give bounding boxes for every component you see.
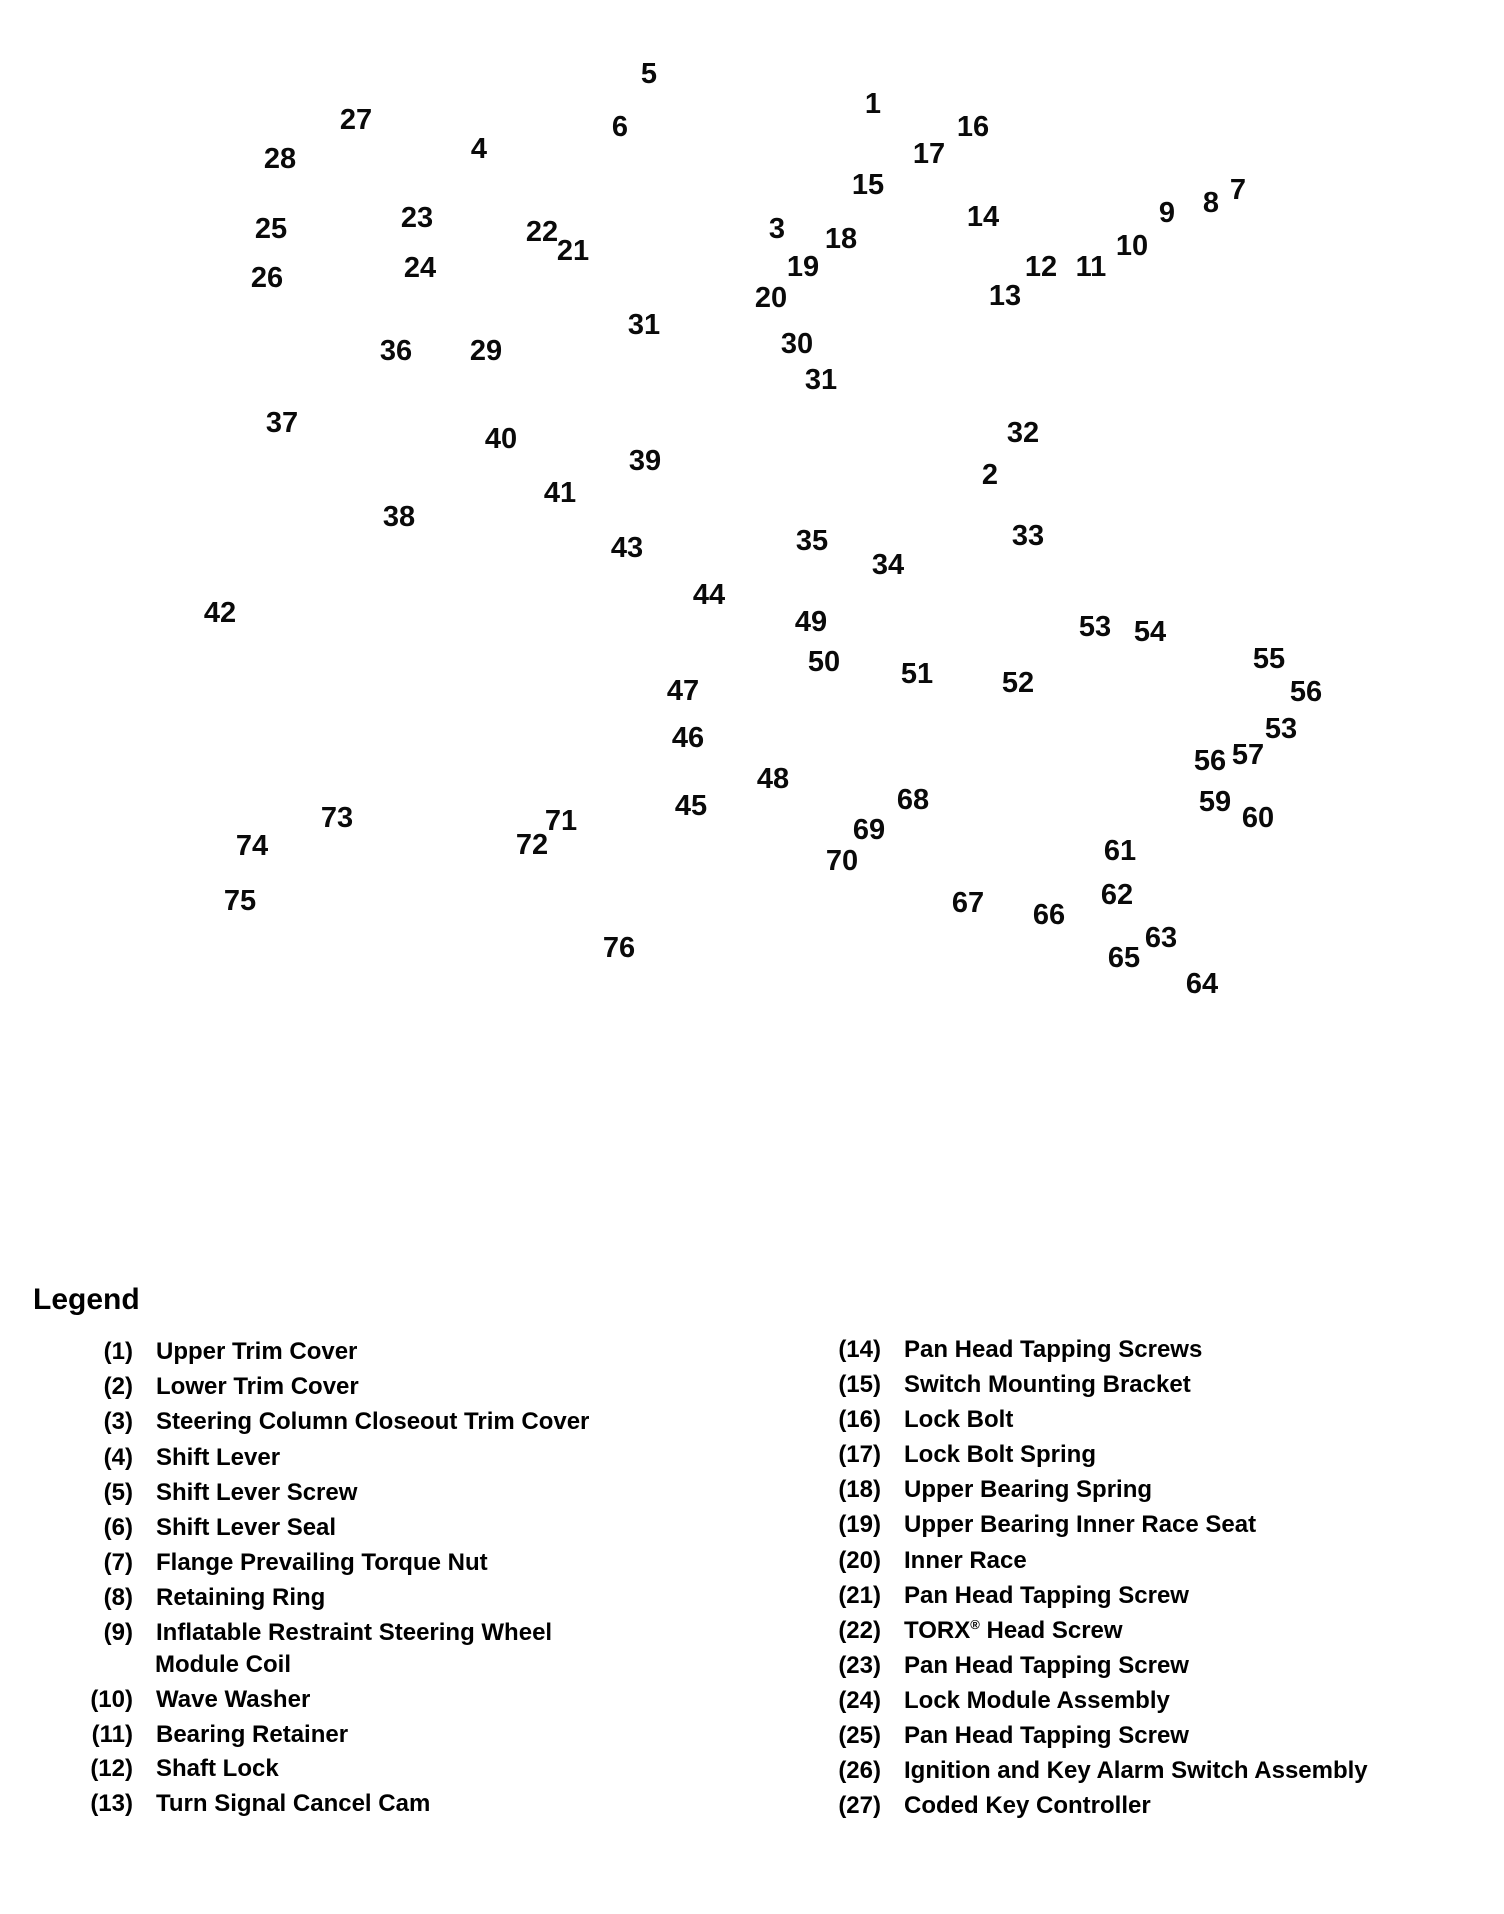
- svg-text:48: 48: [757, 763, 789, 795]
- svg-text:53: 53: [1265, 713, 1297, 745]
- svg-text:16: 16: [957, 111, 989, 143]
- svg-text:12: 12: [1025, 251, 1057, 283]
- svg-text:44: 44: [693, 579, 725, 611]
- svg-text:22: 22: [526, 216, 558, 248]
- svg-text:69: 69: [853, 814, 885, 846]
- svg-text:46: 46: [672, 722, 704, 754]
- svg-text:59: 59: [1199, 786, 1231, 818]
- svg-text:61: 61: [1104, 835, 1136, 867]
- svg-text:4: 4: [471, 133, 487, 165]
- svg-text:5: 5: [641, 58, 657, 90]
- svg-text:50: 50: [808, 646, 840, 678]
- svg-text:66: 66: [1033, 899, 1065, 931]
- svg-text:18: 18: [825, 223, 857, 255]
- svg-text:52: 52: [1002, 667, 1034, 699]
- svg-text:57: 57: [1232, 739, 1264, 771]
- svg-text:2: 2: [982, 459, 998, 491]
- svg-text:17: 17: [913, 138, 945, 170]
- svg-text:23: 23: [401, 202, 433, 234]
- svg-text:11: 11: [1076, 251, 1107, 283]
- svg-text:56: 56: [1194, 745, 1226, 777]
- svg-text:74: 74: [236, 830, 268, 862]
- svg-text:24: 24: [404, 252, 436, 284]
- svg-text:35: 35: [796, 525, 828, 557]
- svg-text:68: 68: [897, 784, 929, 816]
- svg-text:55: 55: [1253, 643, 1285, 675]
- svg-text:67: 67: [952, 887, 984, 919]
- svg-text:29: 29: [470, 335, 502, 367]
- svg-text:15: 15: [852, 169, 884, 201]
- svg-text:28: 28: [264, 143, 296, 175]
- svg-text:19: 19: [787, 251, 819, 283]
- svg-text:43: 43: [611, 532, 643, 564]
- svg-text:13: 13: [989, 280, 1021, 312]
- svg-text:40: 40: [485, 423, 517, 455]
- svg-text:60: 60: [1242, 802, 1274, 834]
- svg-text:21: 21: [557, 235, 589, 267]
- svg-text:27: 27: [340, 104, 372, 136]
- svg-text:38: 38: [383, 501, 415, 533]
- svg-text:30: 30: [781, 328, 813, 360]
- svg-text:53: 53: [1079, 611, 1111, 643]
- svg-text:31: 31: [805, 364, 837, 396]
- svg-text:54: 54: [1134, 616, 1166, 648]
- svg-text:37: 37: [266, 407, 298, 439]
- svg-text:63: 63: [1145, 922, 1177, 954]
- svg-text:3: 3: [769, 213, 785, 245]
- svg-text:41: 41: [544, 477, 576, 509]
- svg-text:7: 7: [1230, 174, 1246, 206]
- svg-text:1: 1: [865, 88, 881, 120]
- svg-text:32: 32: [1007, 417, 1039, 449]
- svg-text:20: 20: [755, 282, 787, 314]
- svg-text:25: 25: [255, 213, 287, 245]
- svg-text:42: 42: [204, 597, 236, 629]
- svg-text:47: 47: [667, 675, 699, 707]
- svg-text:65: 65: [1108, 942, 1140, 974]
- svg-text:49: 49: [795, 606, 827, 638]
- svg-text:70: 70: [826, 845, 858, 877]
- svg-text:71: 71: [545, 805, 577, 837]
- svg-text:64: 64: [1186, 968, 1218, 1000]
- svg-text:34: 34: [872, 549, 904, 581]
- svg-text:10: 10: [1116, 230, 1148, 262]
- svg-text:72: 72: [516, 829, 548, 861]
- svg-text:56: 56: [1290, 676, 1322, 708]
- svg-text:73: 73: [321, 802, 353, 834]
- svg-text:75: 75: [224, 885, 256, 917]
- svg-text:31: 31: [628, 309, 660, 341]
- svg-text:14: 14: [967, 201, 999, 233]
- svg-text:62: 62: [1101, 879, 1133, 911]
- svg-text:9: 9: [1159, 197, 1175, 229]
- svg-text:51: 51: [901, 658, 933, 690]
- svg-text:36: 36: [380, 335, 412, 367]
- svg-text:45: 45: [675, 790, 707, 822]
- svg-text:76: 76: [603, 932, 635, 964]
- svg-text:33: 33: [1012, 520, 1044, 552]
- svg-text:8: 8: [1203, 187, 1219, 219]
- svg-text:6: 6: [612, 111, 628, 143]
- svg-text:26: 26: [251, 262, 283, 294]
- svg-text:39: 39: [629, 445, 661, 477]
